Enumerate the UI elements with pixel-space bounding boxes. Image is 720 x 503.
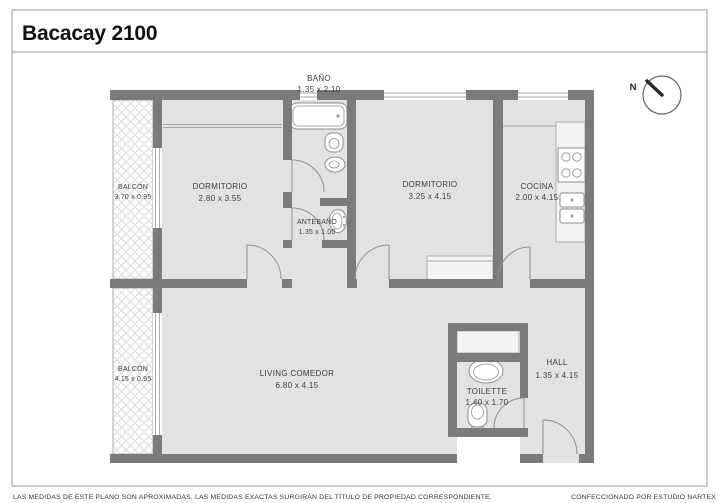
page-title: Bacacay 2100 bbox=[22, 22, 157, 45]
floor-plan-page: { "header": { "title": "Bacacay 2100" },… bbox=[0, 0, 720, 503]
bathtub-drain bbox=[337, 115, 340, 118]
dims-dormitorio-1: 2.80 x 3.55 bbox=[199, 194, 242, 203]
dims-toilette: 1.40 x 1.70 bbox=[466, 398, 509, 407]
dims-balcon-bottom: 4.15 x 0.95 bbox=[115, 376, 152, 383]
label-bano: BAÑO bbox=[307, 74, 331, 83]
faucet-dot bbox=[343, 216, 345, 218]
faucet-dot bbox=[343, 224, 345, 226]
bidet bbox=[325, 157, 345, 172]
dims-cocina: 2.00 x 4.15 bbox=[516, 193, 559, 202]
exterior-notch bbox=[457, 437, 520, 463]
footer: LAS MEDIDAS DE ESTE PLANO SON APROXIMADA… bbox=[13, 492, 716, 501]
footer-credit: CONFECCIONADO POR ESTUDIO NARTEX bbox=[571, 494, 716, 501]
compass-icon: N bbox=[630, 76, 681, 114]
dims-living: 6.80 x 4.15 bbox=[276, 381, 319, 390]
balconies bbox=[113, 100, 153, 454]
sink-drain bbox=[571, 215, 574, 218]
label-antebano: ANTEBAÑO bbox=[297, 217, 337, 226]
dims-hall: 1.35 x 4.15 bbox=[536, 371, 579, 380]
sink-drain bbox=[571, 199, 574, 202]
sink-toilette bbox=[469, 359, 503, 383]
closet-dorm2 bbox=[427, 256, 493, 280]
toilet-bano bbox=[325, 133, 343, 152]
dims-bano: 1.35 x 2.10 bbox=[298, 85, 341, 94]
label-dormitorio-2: DORMITORIO bbox=[403, 180, 458, 189]
compass-north-label: N bbox=[630, 82, 637, 93]
dims-dormitorio-2: 3.25 x 4.15 bbox=[409, 192, 452, 201]
label-cocina: COCINA bbox=[521, 182, 554, 191]
label-toilette: TOILETTE bbox=[467, 387, 507, 396]
label-balcon-top: BALCÓN bbox=[118, 182, 148, 191]
dims-antebano: 1.35 x 1.00 bbox=[299, 229, 336, 236]
footer-disclaimer: LAS MEDIDAS DE ESTE PLANO SON APROXIMADA… bbox=[13, 492, 492, 501]
label-hall: HALL bbox=[546, 358, 567, 367]
label-dormitorio-1: DORMITORIO bbox=[193, 182, 248, 191]
dims-balcon-top: 3.70 x 0.95 bbox=[115, 194, 152, 201]
closet-toilette bbox=[452, 331, 524, 353]
label-balcon-bottom: BALCÓN bbox=[118, 364, 148, 373]
label-living: LIVING COMEDOR bbox=[260, 369, 334, 378]
stove bbox=[558, 148, 585, 182]
floor-plan-svg: Bacacay 2100 bbox=[0, 0, 720, 503]
